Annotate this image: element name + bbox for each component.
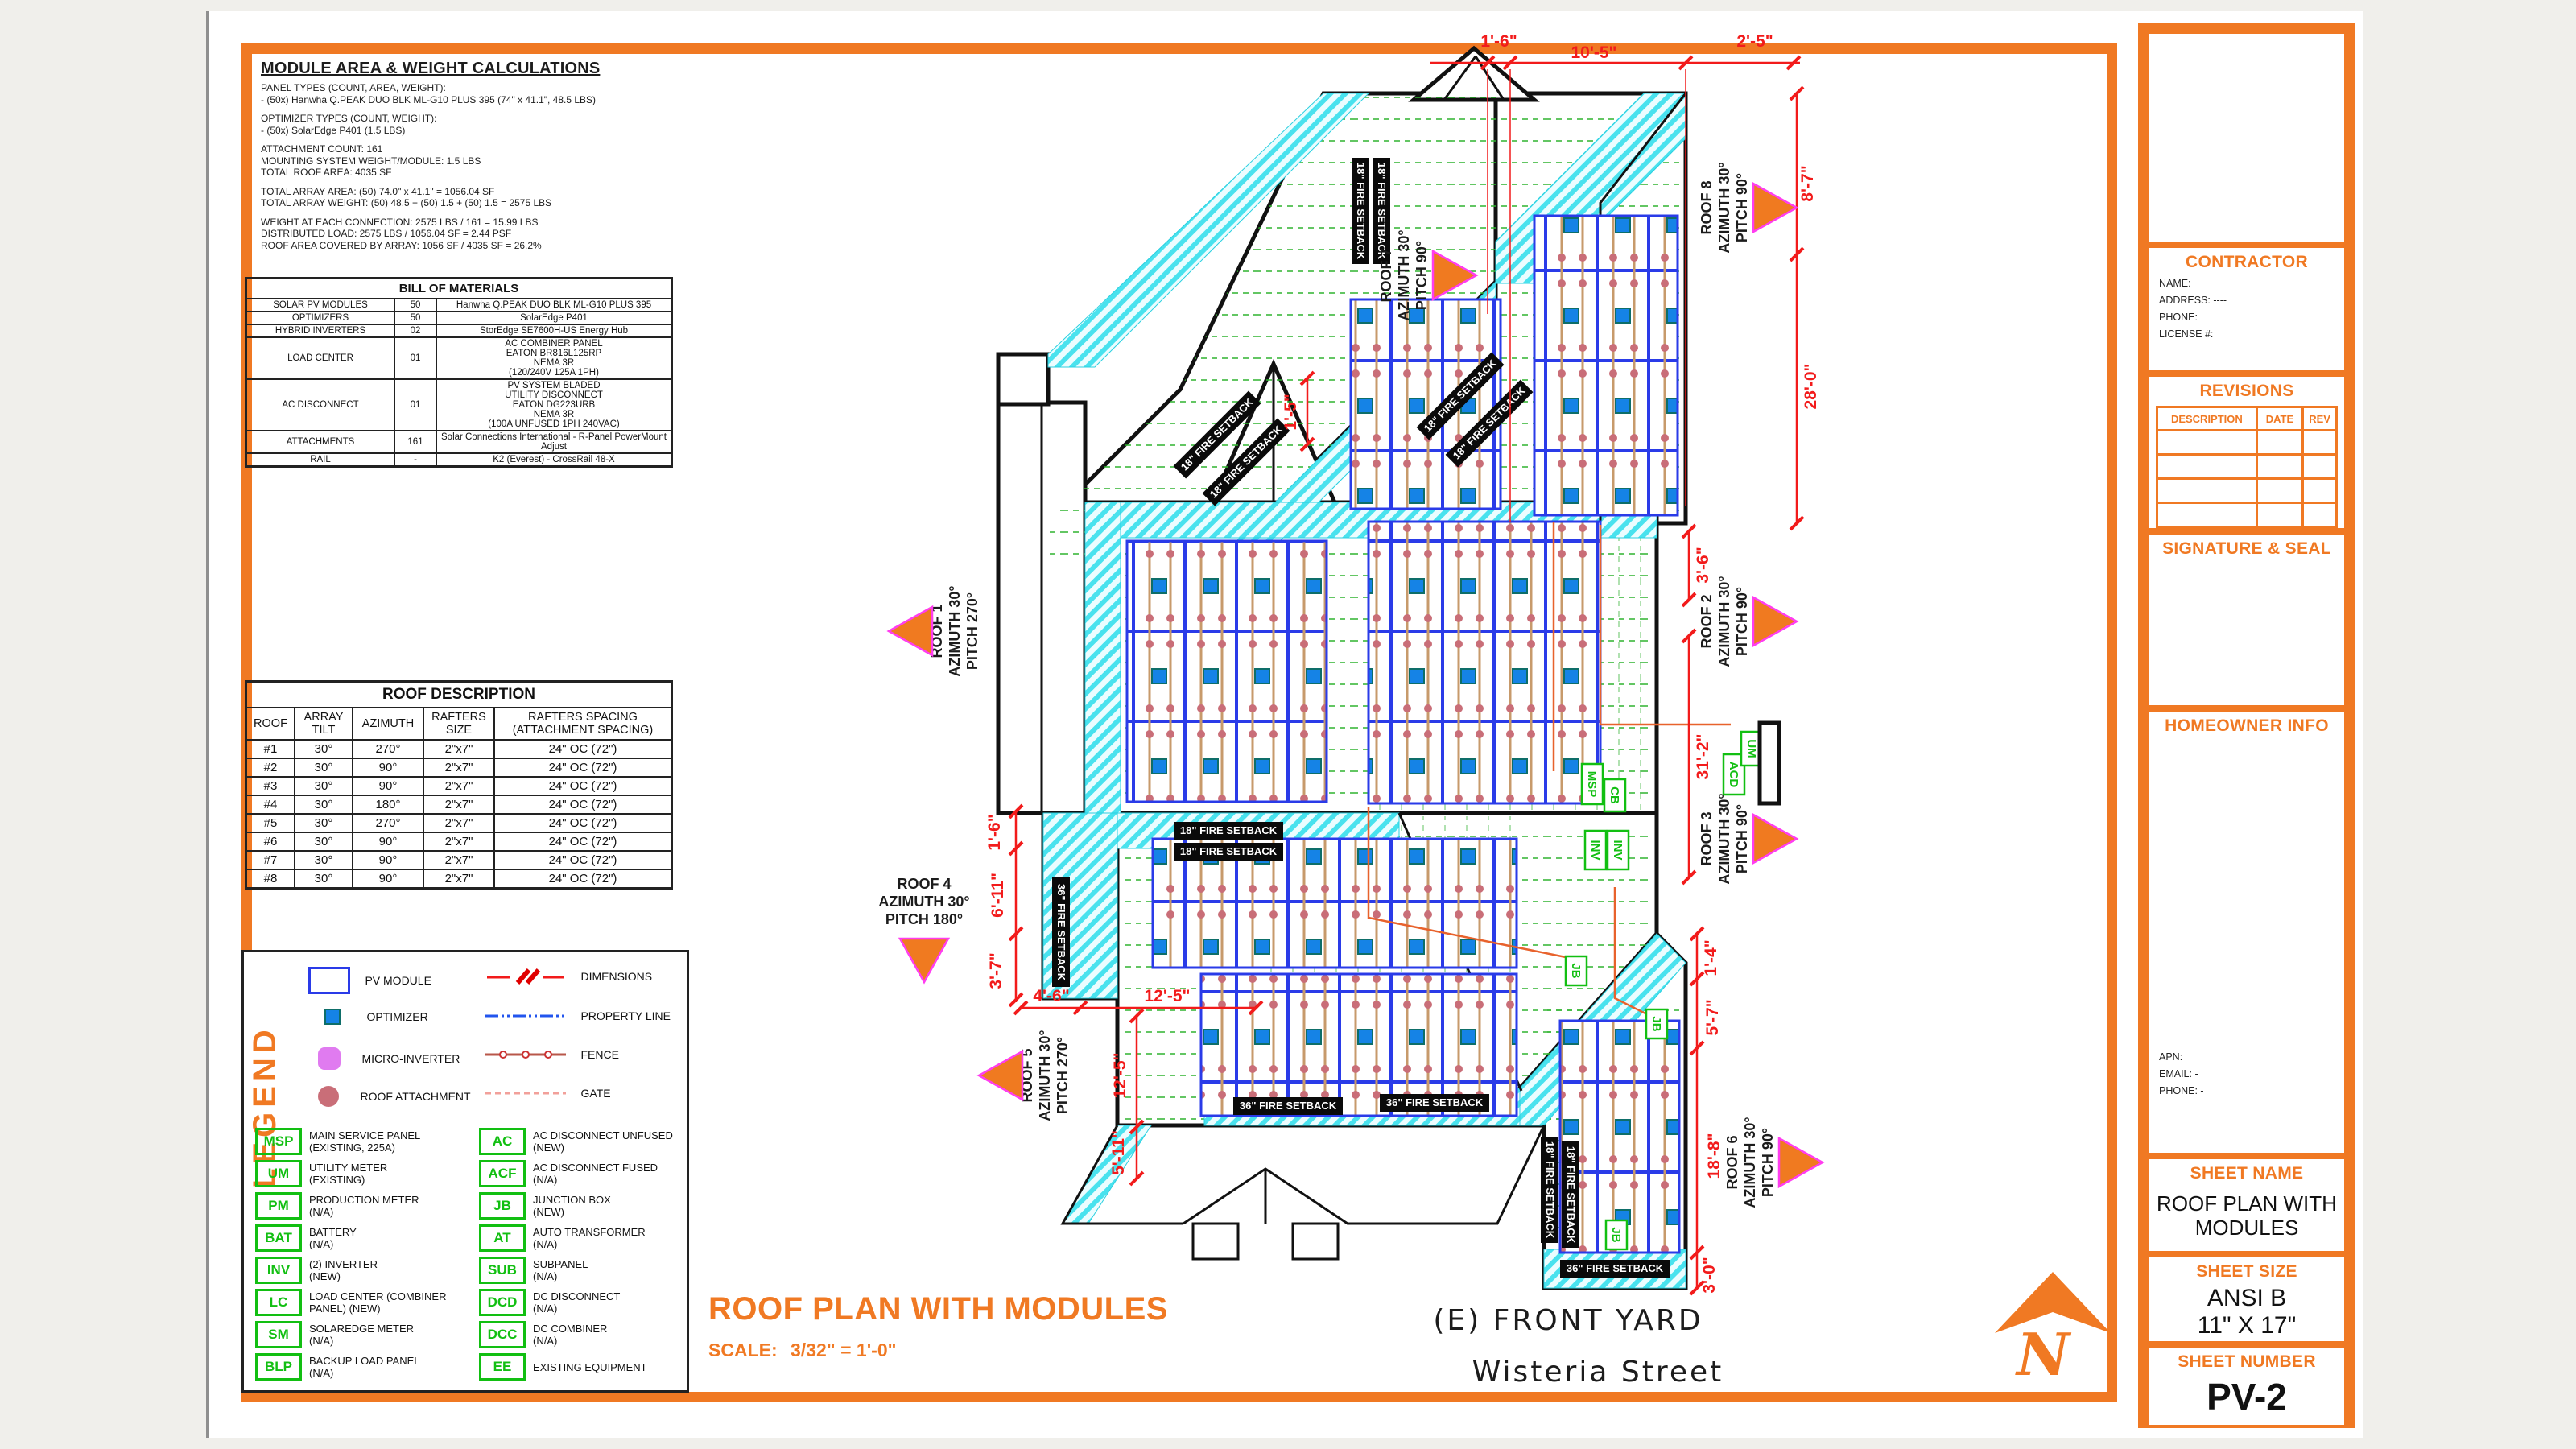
bom-desc-line: (100A UNFUSED 1PH 240VAC): [440, 419, 668, 429]
svg-text:ROOF 4: ROOF 4: [897, 876, 951, 892]
roof-8-label: ROOF 8 AZIMUTH 30° PITCH 90°: [1699, 162, 1750, 253]
bom-desc: K2 (Everest) - CrossRail 48-X: [436, 453, 672, 467]
cell: 180°: [353, 795, 423, 814]
cell: 2"x7": [423, 851, 494, 869]
roof-4-label: ROOF 4 AZIMUTH 30° PITCH 180°: [878, 876, 969, 927]
table-row: [2157, 503, 2337, 527]
gate-icon: [485, 1088, 566, 1098]
svg-text:PITCH 270°: PITCH 270°: [1055, 1037, 1071, 1114]
fire-setback-18-label: 18" FIRE SETBACK: [1355, 163, 1367, 260]
sheet-name-title: SHEET NAME: [2149, 1164, 2344, 1183]
tag-dcc: DCC: [479, 1321, 526, 1348]
homeowner-field: PHONE: -: [2159, 1085, 2344, 1096]
note-line: [261, 179, 700, 186]
sheet-number-value: PV-2: [2149, 1375, 2344, 1418]
sheet-page: MODULE AREA & WEIGHT CALCULATIONS PANEL …: [0, 0, 2576, 1449]
optimizer-icon: [324, 1009, 341, 1025]
roof-2-label: ROOF 2 AZIMUTH 30° PITCH 90°: [1699, 576, 1750, 667]
tag-um: UM: [1744, 739, 1758, 758]
cell: 24" OC (72"): [494, 851, 672, 869]
table-row: ATTACHMENTS 161 Solar Connections Intern…: [246, 431, 672, 453]
dim-label: 5'-11": [1109, 1130, 1128, 1175]
sheet-name-box: SHEET NAME ROOF PLAN WITH MODULES: [2149, 1159, 2344, 1251]
revisions-title: REVISIONS: [2149, 382, 2344, 401]
col-header: DESCRIPTION: [2157, 407, 2257, 431]
cell: 90°: [353, 869, 423, 889]
fire-setback-36-label: 36" FIRE SETBACK: [1240, 1100, 1337, 1112]
legend-tag: MSPMAIN SERVICE PANEL(EXISTING, 225A): [255, 1128, 420, 1160]
tag-label: LOAD CENTER (COMBINERPANEL) (NEW): [309, 1290, 446, 1315]
bom-qty: 50: [394, 299, 436, 312]
bill-of-materials-table: BILL OF MATERIALS SOLAR PV MODULES 50 Ha…: [245, 277, 673, 468]
cell: 90°: [353, 851, 423, 869]
tag-lc: LC: [255, 1289, 302, 1316]
legend-tag: SMSOLAREDGE METER(N/A): [255, 1321, 414, 1353]
tag-label: SUBPANEL(N/A): [533, 1258, 588, 1282]
legend-row: OPTIMIZER: [318, 1009, 428, 1041]
bom-desc: Solar Connections International - R-Pane…: [436, 431, 672, 453]
cell: 270°: [353, 740, 423, 758]
bom-desc-line: (120/240V 125A 1PH): [440, 368, 668, 378]
tag-label: DC DISCONNECT(N/A): [533, 1290, 620, 1315]
cell: #6: [246, 832, 295, 851]
dim-label: 1'-6": [985, 814, 1004, 850]
table-header-row: ROOF ARRAY TILT AZIMUTH RAFTERS SIZE RAF…: [246, 708, 672, 740]
col-header: ARRAY TILT: [295, 708, 353, 740]
table-row: #730°90°2"x7"24" OC (72"): [246, 851, 672, 869]
bom-qty: 01: [394, 337, 436, 379]
svg-text:PITCH 90°: PITCH 90°: [1414, 241, 1430, 310]
tag-label: BATTERY(N/A): [309, 1226, 357, 1250]
north-n-glyph: N: [2015, 1320, 2072, 1389]
bom-desc-line: NEMA 3R: [440, 358, 668, 368]
svg-text:AZIMUTH 30°: AZIMUTH 30°: [878, 894, 969, 910]
tag-msp: MSP: [1585, 771, 1599, 798]
fire-setback-18-label: 18" FIRE SETBACK: [1180, 845, 1278, 857]
dim-label: 4'-6": [1033, 987, 1069, 1005]
fire-setback-36-label: 36" FIRE SETBACK: [1386, 1096, 1484, 1108]
tag-inv: INV: [1611, 840, 1624, 860]
svg-text:ROOF 3: ROOF 3: [1699, 811, 1715, 865]
roof-6-arrow: [1779, 1138, 1823, 1187]
bom-qty: 50: [394, 312, 436, 324]
fire-setback-18-label: 18" FIRE SETBACK: [1180, 824, 1278, 836]
tag-inv: INV: [1588, 840, 1602, 860]
cell: 24" OC (72"): [494, 758, 672, 777]
cell: 270°: [353, 814, 423, 832]
legend-tag: LCLOAD CENTER (COMBINERPANEL) (NEW): [255, 1289, 446, 1321]
dim-label: 1'-6": [1480, 32, 1517, 51]
contractor-box: CONTRACTOR NAME: ADDRESS: ---- PHONE: LI…: [2149, 248, 2344, 370]
notes-title: MODULE AREA & WEIGHT CALCULATIONS: [261, 60, 700, 78]
table-row: #630°90°2"x7"24" OC (72"): [246, 832, 672, 851]
cell: #1: [246, 740, 295, 758]
col-header: RAFTERS SPACING (ATTACHMENT SPACING): [494, 708, 672, 740]
dim-label: 3'-7": [987, 952, 1005, 989]
note-line: - (50x) SolarEdge P401 (1.5 LBS): [261, 125, 700, 137]
sheet-size-box: SHEET SIZE ANSI B 11" X 17": [2149, 1257, 2344, 1341]
tag-pm: PM: [255, 1192, 302, 1220]
roof-5-label: ROOF 5 AZIMUTH 30° PITCH 270°: [1019, 1030, 1071, 1121]
table-row: HYBRID INVERTERS 02 StorEdge SE7600H-US …: [246, 324, 672, 337]
table-row: SOLAR PV MODULES 50 Hanwha Q.PEAK DUO BL…: [246, 299, 672, 312]
dim-label: 2'-5": [1736, 32, 1773, 51]
legend-tag: ACAC DISCONNECT UNFUSED(NEW): [479, 1128, 673, 1160]
cell: 90°: [353, 777, 423, 795]
legend-label: PV MODULE: [365, 974, 431, 987]
tag-label: EXISTING EQUIPMENT: [533, 1361, 647, 1373]
bom-desc-line: PV SYSTEM BLADED: [440, 381, 668, 390]
bom-desc: AC COMBINER PANEL EATON BR816L125RP NEMA…: [436, 337, 672, 379]
legend-tag: DCDDC DISCONNECT(N/A): [479, 1289, 620, 1321]
note-line: WEIGHT AT EACH CONNECTION: 2575 LBS / 16…: [261, 217, 700, 229]
cell: #2: [246, 758, 295, 777]
sheet-number-title: SHEET NUMBER: [2149, 1352, 2344, 1372]
tag-label: DC COMBINER(N/A): [533, 1323, 607, 1347]
bom-desc-line: UTILITY DISCONNECT: [440, 390, 668, 400]
note-line: DISTRIBUTED LOAD: 2575 LBS / 1056.04 SF …: [261, 228, 700, 240]
bom-item: OPTIMIZERS: [246, 312, 395, 324]
north-arrow-logo: N: [1980, 1262, 2125, 1395]
cell: 24" OC (72"): [494, 832, 672, 851]
note-line: PANEL TYPES (COUNT, AREA, WEIGHT):: [261, 82, 700, 94]
svg-text:AZIMUTH 30°: AZIMUTH 30°: [947, 585, 963, 676]
svg-text:ROOF 8: ROOF 8: [1699, 180, 1715, 234]
roof-8-arrow: [1753, 184, 1797, 232]
tag-label: BACKUP LOAD PANEL(N/A): [309, 1355, 420, 1379]
dim-label: 3'-6": [1694, 547, 1712, 583]
cell: 30°: [295, 758, 353, 777]
tag-cb: CB: [1608, 786, 1621, 804]
tag-blp: BLP: [255, 1353, 302, 1381]
cell: 2"x7": [423, 777, 494, 795]
tag-msp: MSP: [255, 1128, 302, 1155]
table-row: #130°270°2"x7"24" OC (72"): [246, 740, 672, 758]
roof-2-arrow: [1753, 597, 1797, 646]
cell: 90°: [353, 832, 423, 851]
svg-text:ROOF 7: ROOF 7: [1378, 248, 1394, 302]
bom-desc-line: EATON DG223URB: [440, 400, 668, 410]
legend-tag: SUBSUBPANEL(N/A): [479, 1257, 588, 1289]
fire-setback-36-label: 36" FIRE SETBACK: [1567, 1262, 1664, 1274]
roof-attachment-icon: [318, 1086, 339, 1107]
table-row: #230°90°2"x7"24" OC (72"): [246, 758, 672, 777]
bom-item: ATTACHMENTS: [246, 431, 395, 453]
cell: #3: [246, 777, 295, 795]
homeowner-field: APN:: [2159, 1051, 2344, 1063]
svg-text:ROOF 2: ROOF 2: [1699, 594, 1715, 648]
cell: 30°: [295, 832, 353, 851]
legend-label: MICRO-INVERTER: [361, 1052, 460, 1065]
property-line-icon: [485, 1010, 566, 1022]
roof-6-label: ROOF 6 AZIMUTH 30° PITCH 90°: [1724, 1117, 1776, 1207]
dim-label: 31'-2": [1694, 734, 1712, 780]
tag-label: (2) INVERTER(NEW): [309, 1258, 378, 1282]
front-yard-label: (E) FRONT YARD: [1433, 1304, 1703, 1337]
tag-bat: BAT: [255, 1224, 302, 1252]
legend-label: FENCE: [580, 1048, 618, 1061]
bom-qty: 161: [394, 431, 436, 453]
svg-text:PITCH 90°: PITCH 90°: [1734, 173, 1750, 242]
roof-plan-drawing: 18" FIRE SETBACK 18" FIRE SETBACK 18" FI…: [853, 32, 1860, 1401]
cell: 24" OC (72"): [494, 795, 672, 814]
svg-text:AZIMUTH 30°: AZIMUTH 30°: [1716, 162, 1732, 253]
dim-label: 1'-4": [1702, 939, 1720, 976]
legend-tag: ACFAC DISCONNECT FUSED(N/A): [479, 1160, 658, 1192]
street-name-label: Wisteria Street: [1472, 1356, 1724, 1389]
legend-row: FENCE: [485, 1047, 619, 1080]
dim-label: 3'-0": [1700, 1257, 1719, 1293]
contractor-field: NAME:: [2159, 278, 2344, 289]
svg-text:PITCH 90°: PITCH 90°: [1760, 1128, 1776, 1197]
table-header-row: DESCRIPTION DATE REV: [2157, 407, 2337, 431]
table-row: AC DISCONNECT 01 PV SYSTEM BLADED UTILIT…: [246, 379, 672, 431]
tag-at: AT: [479, 1224, 526, 1252]
table-row: [2157, 455, 2337, 479]
contractor-field: PHONE:: [2159, 312, 2344, 323]
legend-row: PROPERTY LINE: [485, 1009, 671, 1041]
svg-text:ROOF 6: ROOF 6: [1724, 1135, 1740, 1189]
cell: 24" OC (72"): [494, 869, 672, 889]
legend-label: ROOF ATTACHMENT: [360, 1090, 470, 1103]
legend-label: PROPERTY LINE: [580, 1009, 671, 1022]
contractor-field: LICENSE #:: [2159, 328, 2344, 340]
table-row: #530°270°2"x7"24" OC (72"): [246, 814, 672, 832]
tag-label: JUNCTION BOX(NEW): [533, 1194, 611, 1218]
sheet-size-title: SHEET SIZE: [2149, 1262, 2344, 1282]
bom-desc-line: EATON BR816L125RP: [440, 349, 668, 358]
cell: 24" OC (72"): [494, 777, 672, 795]
legend-tag: DCCDC COMBINER(N/A): [479, 1321, 607, 1353]
tag-acf: ACF: [479, 1160, 526, 1187]
fire-setback-18-label: 18" FIRE SETBACK: [1544, 1141, 1556, 1239]
legend-tag: JBJUNCTION BOX(NEW): [479, 1192, 611, 1224]
cell: 2"x7": [423, 832, 494, 851]
logo-area: [2149, 34, 2344, 242]
legend-box: LEGEND PV MODULE OPTIMIZER MICRO-INVERTE…: [242, 950, 689, 1393]
title-block-sidebar: CONTRACTOR NAME: ADDRESS: ---- PHONE: LI…: [2138, 23, 2355, 1428]
tag-um: UM: [255, 1160, 302, 1187]
fire-setback-36-label: 36" FIRE SETBACK: [1055, 884, 1067, 981]
table-row: #330°90°2"x7"24" OC (72"): [246, 777, 672, 795]
table-row: [2157, 431, 2337, 455]
homeowner-field: EMAIL: -: [2159, 1068, 2344, 1080]
table-row: [2157, 479, 2337, 503]
cell: 30°: [295, 869, 353, 889]
dimensions-icon: [485, 967, 566, 986]
note-line: ROOF AREA COVERED BY ARRAY: 1056 SF / 40…: [261, 240, 700, 252]
roof-description-table: ROOF DESCRIPTION ROOF ARRAY TILT AZIMUTH…: [245, 680, 673, 890]
note-line: [261, 136, 700, 143]
roof-4-arrow: [900, 939, 948, 982]
roof-5-arrow: [979, 1051, 1022, 1100]
fire-setback-18-label: 18" FIRE SETBACK: [1376, 163, 1388, 260]
fence-icon: [485, 1048, 566, 1061]
module-weight-calcs: MODULE AREA & WEIGHT CALCULATIONS PANEL …: [261, 60, 700, 251]
contractor-field: ADDRESS: ----: [2159, 295, 2344, 306]
legend-tag: ATAUTO TRANSFORMER(N/A): [479, 1224, 646, 1257]
cell: 2"x7": [423, 795, 494, 814]
sheet-number-box: SHEET NUMBER PV-2: [2149, 1348, 2344, 1425]
svg-text:PITCH 90°: PITCH 90°: [1734, 587, 1750, 656]
legend-row: MICRO-INVERTER: [318, 1047, 460, 1080]
bom-desc: SolarEdge P401: [436, 312, 672, 324]
legend-tag: PMPRODUCTION METER(N/A): [255, 1192, 419, 1224]
sheet-size-value: ANSI B 11" X 17": [2149, 1285, 2344, 1340]
svg-text:AZIMUTH 30°: AZIMUTH 30°: [1742, 1117, 1758, 1207]
tag-jb: JB: [1609, 1227, 1623, 1242]
bom-desc-line: NEMA 3R: [440, 410, 668, 419]
cell: 24" OC (72"): [494, 740, 672, 758]
revisions-box: REVISIONS DESCRIPTION DATE REV: [2149, 377, 2344, 528]
legend-row: ROOF ATTACHMENT: [318, 1086, 471, 1118]
cell: 2"x7": [423, 869, 494, 889]
signature-seal-box: SIGNATURE & SEAL: [2149, 535, 2344, 705]
cell: 2"x7": [423, 814, 494, 832]
cell: 2"x7": [423, 740, 494, 758]
cell: #4: [246, 795, 295, 814]
tag-sm: SM: [255, 1321, 302, 1348]
roof-1-arrow: [889, 607, 932, 655]
dim-label: 12'-5": [1145, 987, 1191, 1005]
bom-qty: 01: [394, 379, 436, 431]
bom-qty: 02: [394, 324, 436, 337]
cell: 30°: [295, 814, 353, 832]
note-line: TOTAL ARRAY WEIGHT: (50) 48.5 + (50) 1.5…: [261, 197, 700, 209]
tag-label: SOLAREDGE METER(N/A): [309, 1323, 414, 1347]
legend-tag: INV(2) INVERTER(NEW): [255, 1257, 378, 1289]
table-row: LOAD CENTER 01 AC COMBINER PANEL EATON B…: [246, 337, 672, 379]
legend-label: OPTIMIZER: [366, 1010, 427, 1023]
roof-3-label: ROOF 3 AZIMUTH 30° PITCH 90°: [1699, 793, 1750, 884]
dim-label: 8'-7": [1798, 165, 1817, 201]
bom-item: RAIL: [246, 453, 395, 467]
svg-text:AZIMUTH 30°: AZIMUTH 30°: [1716, 576, 1732, 667]
svg-text:PITCH 90°: PITCH 90°: [1734, 804, 1750, 873]
dim-label: 10'-5": [1571, 43, 1617, 62]
fire-setback-18-label: 18" FIRE SETBACK: [1565, 1146, 1577, 1244]
table-row: RAIL - K2 (Everest) - CrossRail 48-X: [246, 453, 672, 467]
note-line: OPTIMIZER TYPES (COUNT, WEIGHT):: [261, 113, 700, 125]
tag-jb: JB: [1649, 1016, 1663, 1031]
tag-jb: JB: [1569, 963, 1583, 978]
table-row: #830°90°2"x7"24" OC (72"): [246, 869, 672, 889]
col-header: REV: [2303, 407, 2337, 431]
svg-text:PITCH 180°: PITCH 180°: [885, 911, 963, 927]
table-row: OPTIMIZERS 50 SolarEdge P401: [246, 312, 672, 324]
scale-label: SCALE:: [708, 1340, 778, 1360]
tag-label: AUTO TRANSFORMER(N/A): [533, 1226, 646, 1250]
cell: #7: [246, 851, 295, 869]
dim-label: 1'-5": [1282, 394, 1300, 430]
tag-label: AC DISCONNECT FUSED(N/A): [533, 1162, 658, 1186]
cell: #5: [246, 814, 295, 832]
legend-label: DIMENSIONS: [580, 970, 652, 983]
bom-qty: -: [394, 453, 436, 467]
legend-tag: EEEXISTING EQUIPMENT: [479, 1353, 647, 1385]
bom-desc-line: AC COMBINER PANEL: [440, 339, 668, 349]
tag-ac: AC: [479, 1128, 526, 1155]
note-line: ATTACHMENT COUNT: 161: [261, 143, 700, 155]
col-header: DATE: [2256, 407, 2302, 431]
col-header: RAFTERS SIZE: [423, 708, 494, 740]
svg-text:AZIMUTH 30°: AZIMUTH 30°: [1396, 229, 1412, 320]
bom-item: SOLAR PV MODULES: [246, 299, 395, 312]
legend-tag: BLPBACKUP LOAD PANEL(N/A): [255, 1353, 420, 1385]
bom-item: HYBRID INVERTERS: [246, 324, 395, 337]
dim-label: 18'-8": [1705, 1133, 1724, 1179]
tag-label: MAIN SERVICE PANEL(EXISTING, 225A): [309, 1129, 420, 1154]
svg-text:PITCH 270°: PITCH 270°: [964, 592, 980, 670]
cell: 90°: [353, 758, 423, 777]
dim-label: 28'-0": [1802, 364, 1820, 410]
roof-1-label: ROOF 1 AZIMUTH 30° PITCH 270°: [929, 585, 980, 676]
signature-title: SIGNATURE & SEAL: [2149, 539, 2344, 559]
note-line: [261, 209, 700, 217]
homeowner-title: HOMEOWNER INFO: [2149, 716, 2344, 736]
revisions-table: DESCRIPTION DATE REV: [2156, 406, 2338, 552]
legend-row: GATE: [485, 1086, 611, 1118]
sheet-name-value: ROOF PLAN WITH MODULES: [2149, 1191, 2344, 1240]
bom-item: AC DISCONNECT: [246, 379, 395, 431]
note-line: [261, 105, 700, 113]
note-line: TOTAL ARRAY AREA: (50) 74.0" x 41.1" = 1…: [261, 186, 700, 198]
legend-tag: UMUTILITY METER(EXISTING): [255, 1160, 387, 1192]
cell: 30°: [295, 851, 353, 869]
pv-module-icon: [308, 967, 350, 994]
micro-inverter-icon: [318, 1047, 341, 1070]
col-header: ROOF: [246, 708, 295, 740]
roof-3-arrow: [1753, 815, 1797, 863]
tag-label: UTILITY METER(EXISTING): [309, 1162, 387, 1186]
tag-inv: INV: [255, 1257, 302, 1284]
tag-label: PRODUCTION METER(N/A): [309, 1194, 419, 1218]
tag-sub: SUB: [479, 1257, 526, 1284]
note-line: TOTAL ROOF AREA: 4035 SF: [261, 167, 700, 179]
legend-row: DIMENSIONS: [485, 967, 652, 999]
tag-dcd: DCD: [479, 1289, 526, 1316]
table-row: #430°180°2"x7"24" OC (72"): [246, 795, 672, 814]
cell: 24" OC (72"): [494, 814, 672, 832]
cell: 30°: [295, 777, 353, 795]
bom-desc: Hanwha Q.PEAK DUO BLK ML-G10 PLUS 395: [436, 299, 672, 312]
col-header: AZIMUTH: [353, 708, 423, 740]
legend-tag: BATBATTERY(N/A): [255, 1224, 357, 1257]
tag-ee: EE: [479, 1353, 526, 1381]
contractor-title: CONTRACTOR: [2149, 253, 2344, 272]
svg-text:AZIMUTH 30°: AZIMUTH 30°: [1037, 1030, 1053, 1121]
roof-table-title: ROOF DESCRIPTION: [246, 682, 672, 708]
dim-label: 5'-7": [1703, 999, 1722, 1035]
tag-acd: ACD: [1727, 762, 1740, 788]
legend-label: GATE: [580, 1087, 610, 1100]
dim-label: 6'-11": [989, 873, 1007, 918]
svg-text:AZIMUTH 30°: AZIMUTH 30°: [1716, 793, 1732, 884]
dim-label: 12'-5": [1111, 1053, 1129, 1099]
homeowner-box: HOMEOWNER INFO APN: EMAIL: - PHONE: -: [2149, 712, 2344, 1153]
bom-desc: PV SYSTEM BLADED UTILITY DISCONNECT EATO…: [436, 379, 672, 431]
tag-jb: JB: [479, 1192, 526, 1220]
bom-title: BILL OF MATERIALS: [246, 279, 672, 299]
legend-row: PV MODULE: [308, 967, 431, 999]
tag-label: AC DISCONNECT UNFUSED(NEW): [533, 1129, 673, 1154]
cell: #8: [246, 869, 295, 889]
bom-desc: StorEdge SE7600H-US Energy Hub: [436, 324, 672, 337]
cell: 30°: [295, 795, 353, 814]
cell: 30°: [295, 740, 353, 758]
utility-meter: [1760, 723, 1779, 803]
note-line: MOUNTING SYSTEM WEIGHT/MODULE: 1.5 LBS: [261, 155, 700, 167]
